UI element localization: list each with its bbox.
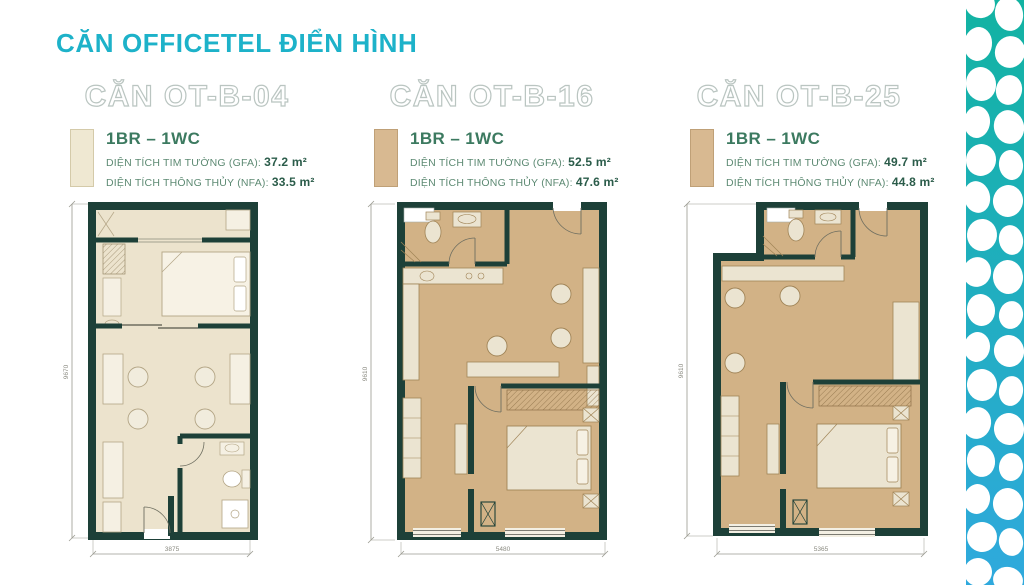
floor-plan-ot-b-04: 9670 3875 xyxy=(58,196,273,576)
toilet xyxy=(223,471,241,487)
ac-unit xyxy=(226,210,250,230)
nfa-line: DIỆN TÍCH THÔNG THỦY (NFA): 33.5 m² xyxy=(106,175,315,189)
nfa-line: DIỆN TÍCH THÔNG THỦY (NFA): 44.8 m² xyxy=(726,175,935,189)
height-dimension-label: 9670 xyxy=(63,364,70,379)
unit-title: CĂN OT-B-25 xyxy=(668,80,930,114)
tv-cabinet xyxy=(455,424,467,474)
gfa-label: DIỆN TÍCH TIM TƯỜNG (GFA): xyxy=(106,157,261,169)
unit-title: CĂN OT-B-04 xyxy=(62,80,312,114)
cabinet-left xyxy=(103,442,123,498)
gfa-value: 37.2 m² xyxy=(264,155,307,169)
gfa-line: DIỆN TÍCH TIM TƯỜNG (GFA): 37.2 m² xyxy=(106,155,315,169)
desk-right xyxy=(230,354,250,404)
unit-info: 1BR – 1WC DIỆN TÍCH TIM TƯỜNG (GFA): 49.… xyxy=(690,129,930,189)
desk-left xyxy=(103,354,123,404)
gfa-label: DIỆN TÍCH TIM TƯỜNG (GFA): xyxy=(726,157,881,169)
organic-pattern xyxy=(956,0,1024,585)
width-dimension-label: 5365 xyxy=(814,546,829,553)
closet xyxy=(103,502,121,532)
desk-right xyxy=(893,302,919,382)
brochure-page: { "header": { "title": "CĂN OFFICETEL ĐI… xyxy=(0,0,1024,585)
bedroom xyxy=(817,386,911,506)
floor-plan-ot-b-16: 9610 5480 xyxy=(355,196,640,576)
gfa-label: DIỆN TÍCH TIM TƯỜNG (GFA): xyxy=(410,157,565,169)
floor-color-swatch xyxy=(690,129,714,187)
page-title: CĂN OFFICETEL ĐIỂN HÌNH xyxy=(56,28,417,59)
toilet xyxy=(788,219,804,241)
floor-color-swatch xyxy=(70,129,94,187)
dresser xyxy=(103,278,121,316)
wardrobe xyxy=(819,386,911,406)
shower xyxy=(222,500,248,528)
toilet xyxy=(425,221,441,243)
desk-top xyxy=(722,266,844,281)
gfa-value: 52.5 m² xyxy=(568,155,611,169)
gfa-line: DIỆN TÍCH TIM TƯỜNG (GFA): 52.5 m² xyxy=(410,155,619,169)
nfa-value: 33.5 m² xyxy=(272,175,315,189)
nfa-line: DIỆN TÍCH THÔNG THỦY (NFA): 47.6 m² xyxy=(410,175,619,189)
desk-center xyxy=(467,362,559,377)
bedroom xyxy=(507,390,599,508)
unit-type-label: 1BR – 1WC xyxy=(106,129,315,149)
width-dimension-label: 5480 xyxy=(496,546,511,553)
nfa-label: DIỆN TÍCH THÔNG THỦY (NFA): xyxy=(410,177,573,189)
height-dimension-label: 9610 xyxy=(362,366,369,381)
desk-right xyxy=(583,268,599,363)
height-dimension-label: 9610 xyxy=(678,363,685,378)
floor-plan-ot-b-25: 9610 5365 xyxy=(663,196,943,576)
tv-cabinet xyxy=(767,424,779,474)
unit-card-ot-b-16: CĂN OT-B-16 1BR – 1WC DIỆN TÍCH TIM TƯỜN… xyxy=(358,80,626,189)
nfa-label: DIỆN TÍCH THÔNG THỦY (NFA): xyxy=(106,177,269,189)
nfa-label: DIỆN TÍCH THÔNG THỦY (NFA): xyxy=(726,177,889,189)
unit-title: CĂN OT-B-16 xyxy=(358,80,626,114)
nfa-value: 47.6 m² xyxy=(576,175,619,189)
unit-card-ot-b-04: CĂN OT-B-04 1BR – 1WC DIỆN TÍCH TIM TƯỜN… xyxy=(62,80,312,189)
gfa-line: DIỆN TÍCH TIM TƯỜNG (GFA): 49.7 m² xyxy=(726,155,935,169)
unit-info: 1BR – 1WC DIỆN TÍCH TIM TƯỜNG (GFA): 52.… xyxy=(374,129,626,189)
unit-card-ot-b-25: CĂN OT-B-25 1BR – 1WC DIỆN TÍCH TIM TƯỜN… xyxy=(668,80,930,189)
floor-color-swatch xyxy=(374,129,398,187)
sink xyxy=(815,210,841,224)
nfa-value: 44.8 m² xyxy=(892,175,935,189)
wardrobe xyxy=(507,390,599,410)
sliding-door-partition xyxy=(92,323,254,329)
unit-type-label: 1BR – 1WC xyxy=(410,129,619,149)
gfa-value: 49.7 m² xyxy=(884,155,927,169)
unit-info: 1BR – 1WC DIỆN TÍCH TIM TƯỜNG (GFA): 37.… xyxy=(70,129,312,189)
width-dimension-label: 3875 xyxy=(165,546,180,553)
wardrobe xyxy=(103,244,125,274)
unit-type-label: 1BR – 1WC xyxy=(726,129,935,149)
